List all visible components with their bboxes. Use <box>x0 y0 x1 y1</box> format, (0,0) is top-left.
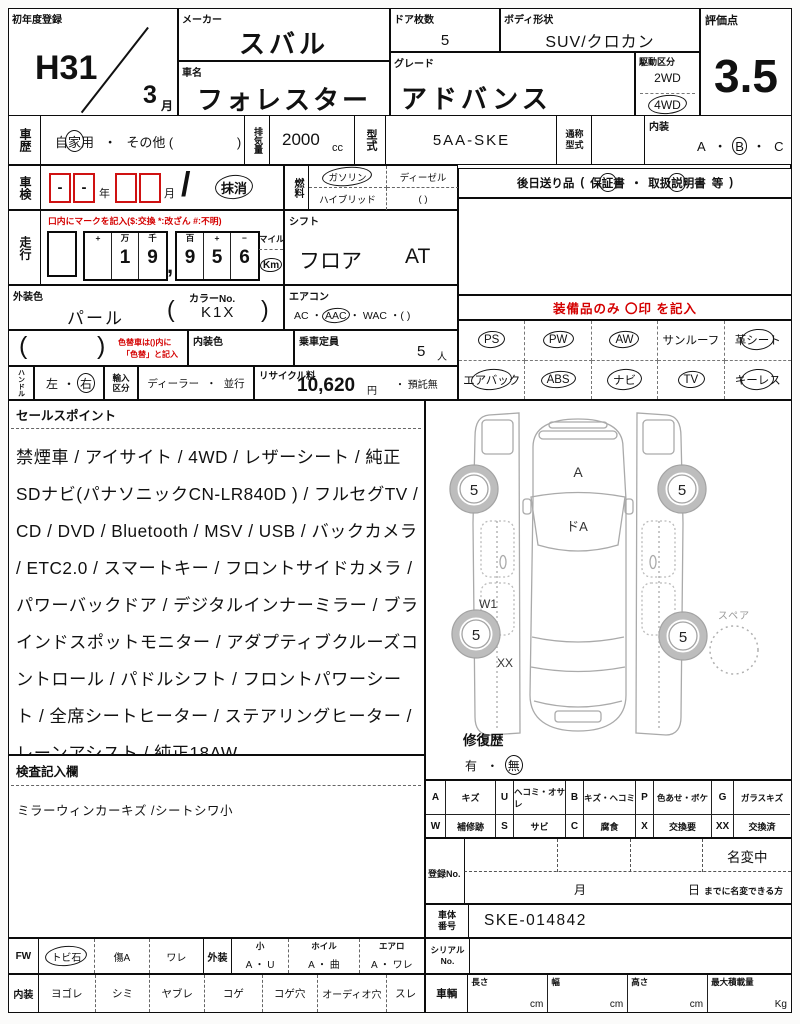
common-code-label-box: 通称型式 <box>556 115 593 165</box>
int-wear: スレ <box>387 975 424 1012</box>
shaken-year-box2: - <box>73 173 95 203</box>
displacement-label-box: 排気量 <box>244 115 271 165</box>
capacity-unit: 人 <box>437 348 447 363</box>
interior-color-label: 内装色 <box>193 333 223 348</box>
model-code-label-box: 型式 <box>354 115 387 165</box>
shift-label: シフト <box>289 213 319 228</box>
aircon-aac: AAC <box>325 310 347 322</box>
recycle-value: 10,620 <box>297 375 355 397</box>
dim-height-unit: cm <box>690 999 703 1010</box>
interior-grade-b: B <box>735 139 744 154</box>
history-private-circled: 家 <box>68 132 81 151</box>
equipment-title-box: 装備品のみ 〇印 を記入 <box>458 295 792 320</box>
later-items-label: 後日送り品 <box>517 175 575 191</box>
color-no-value: K1X <box>201 304 235 321</box>
car-diagram: 5 5 5 5 スペア A ドA W1 XX <box>427 405 791 737</box>
legend-val: サビ <box>514 815 566 837</box>
later-items-open: ( <box>580 177 584 189</box>
displacement-value: 2000 <box>282 130 320 150</box>
fuel-label-box: 燃料 <box>284 165 310 210</box>
car-diagram-box: 5 5 5 5 スペア A ドA W1 XX 修復歴 有 ・ 無 <box>425 400 792 780</box>
car-name-label: 車名 <box>182 64 202 79</box>
shaken-year-box1: - <box>49 173 71 203</box>
int-burn: コゲ <box>205 975 263 1012</box>
legend-val: キズ <box>446 781 496 815</box>
model-code-value: 5AA-SKE <box>433 132 510 149</box>
later-items-etc: 等 <box>712 175 724 191</box>
color-change-box: ( ) 色替車は()内に 「色替」と記入 <box>8 330 188 366</box>
import-box: ディーラー ・ 並行 <box>138 366 254 400</box>
mileage-note: 口内にマークを記入($:交換 *:改ざん #:不明) <box>48 214 222 227</box>
color-no-close: ) <box>261 296 269 323</box>
color-change-note2: 「色替」と記入 <box>122 349 178 360</box>
car-name-box: 車名 フォレスター <box>178 61 390 116</box>
mileage-km-unit: Km <box>263 260 279 271</box>
svg-text:5: 5 <box>470 482 478 499</box>
import-label: 輸入区分 <box>112 373 130 393</box>
import-dot: ・ <box>206 376 217 391</box>
handle-dot: ・ <box>63 375 75 392</box>
interior-damage-label: 内装 <box>9 975 39 1012</box>
equip-aw: AW <box>615 334 633 346</box>
legend-val: キズ・ヘコミ <box>584 781 636 815</box>
shaken-month-box2 <box>139 173 161 203</box>
later-items-dot: ・ <box>631 175 643 191</box>
dim-length-label: 長さ <box>471 976 488 988</box>
fw-row: FW トビ石 傷A ワレ 外装 小 A ・ U ホイル A ・ 曲 エアロ A … <box>8 938 425 974</box>
legend-key: XX <box>712 815 734 837</box>
legend-val: 色あせ・ボケ <box>654 781 712 815</box>
inspection-divider <box>11 785 421 786</box>
history-box: 自家用 ・ その他 ( ) <box>40 115 246 165</box>
dim-width-label: 幅 <box>551 976 560 988</box>
serial-label: シリアルNo. <box>429 945 467 966</box>
capacity-box: 乗車定員 5 人 <box>294 330 458 366</box>
notes-empty-box <box>458 198 792 295</box>
grade-value: アドバンス <box>401 79 552 116</box>
equip-pw: PW <box>549 334 568 346</box>
displacement-label: 排気量 <box>253 116 262 164</box>
model-code-box: 5AA-SKE <box>385 115 558 165</box>
sales-points-label: セールスポイント <box>16 405 116 424</box>
inspection-box: 検査記入欄 ミラーウィンカーキズ /シートシワ小 <box>8 755 425 938</box>
repair-no: 無 <box>508 757 520 774</box>
interior-grade-c: C <box>774 139 783 154</box>
later-items-close: ) <box>729 177 733 189</box>
legend-key: C <box>566 815 584 837</box>
fuel-box: ガソリン ディーゼル ハイブリッド ( ) <box>308 165 458 210</box>
svg-text:5: 5 <box>679 629 687 646</box>
mileage-group1: + 万1 千9 <box>83 231 168 281</box>
mileage-label: 走行 <box>19 211 31 284</box>
interior-color-box: 内装色 <box>188 330 294 366</box>
first-reg-era: H31 <box>35 49 97 88</box>
legend-val: 交換要 <box>654 815 712 837</box>
shift-transmission: AT <box>405 245 430 269</box>
recycle-box: リサイクル料 10,620 円 ・ 預託無 <box>254 366 458 400</box>
drive-2wd: 2WD <box>654 71 681 85</box>
registration-status: 名変中 <box>727 846 768 866</box>
svg-text:5: 5 <box>472 627 480 644</box>
model-code-label: 型式 <box>365 116 376 164</box>
ext-aero-header: エアロ <box>360 940 424 952</box>
displacement-unit: cc <box>332 142 343 154</box>
serial-row: シリアルNo. <box>425 938 792 974</box>
dim-width-unit: cm <box>610 999 623 1010</box>
ext-wheel-options: A ・ 曲 <box>289 956 358 971</box>
shaken-year-unit: 年 <box>99 185 110 201</box>
wheels: 5 5 5 5 <box>450 465 707 660</box>
fuel-label: 燃料 <box>292 166 302 209</box>
color-no-open: ( <box>167 296 175 323</box>
ext-aero-options: A ・ ワレ <box>360 956 424 971</box>
history-dot: ・ <box>104 135 117 150</box>
registration-label: 登録No. <box>428 867 461 880</box>
int-audio-hole: オーディオ穴 <box>318 975 388 1012</box>
equip-navi: ナビ <box>613 372 636 388</box>
color-no-label: カラーNo. <box>189 290 235 305</box>
interior-grade-box: 内装 A ・ B ・ C <box>644 115 792 165</box>
grade-label: グレード <box>394 55 434 70</box>
repair-dot: ・ <box>486 759 498 773</box>
first-reg-month: 3 <box>143 81 157 110</box>
legend-key: W <box>426 815 446 837</box>
legend-key: G <box>712 781 734 815</box>
registration-top-row: 名変中 <box>464 839 791 872</box>
capacity-label: 乗車定員 <box>299 333 339 348</box>
doors-value: 5 <box>441 32 449 49</box>
mileage-empty-box <box>47 231 77 277</box>
common-code-label: 通称型式 <box>565 129 585 151</box>
interior-damage-row: 内装 ヨゴレ シミ ヤブレ コゲ コゲ穴 オーディオ穴 スレ <box>8 974 425 1013</box>
registration-note: までに名変できる方 <box>704 884 783 897</box>
doors-label: ドア枚数 <box>394 11 434 26</box>
registration-month: 月 <box>574 881 586 898</box>
aircon-other: ・( ) <box>390 310 410 322</box>
handle-label-box: ハンドル <box>8 366 34 400</box>
history-close: ) <box>237 135 241 150</box>
equip-sunroof: サンルーフ <box>662 332 719 348</box>
aircon-dot1: ・ <box>312 310 323 322</box>
mileage-mile-unit: マイル <box>259 233 285 245</box>
score-value: 3.5 <box>714 49 778 103</box>
first-registration-box: 初年度登録 H31 3 月 <box>8 8 178 116</box>
legend-key: X <box>636 815 654 837</box>
interior-grade-label: 内装 <box>649 118 669 133</box>
dim-height-label: 高さ <box>631 976 648 988</box>
mileage-label-box: 走行 <box>8 210 42 285</box>
body-shape-label: ボディ形状 <box>504 11 553 26</box>
equip-airbag: エアバック <box>463 372 520 388</box>
chassis-value: SKE-014842 <box>484 912 587 930</box>
import-parallel: 並行 <box>224 376 245 391</box>
fuel-hybrid: ハイブリッド <box>319 192 376 206</box>
sales-points-box: セールスポイント 禁煙車 / アイサイト / 4WD / レザーシート / 純正… <box>8 400 425 755</box>
aircon-box: エアコン AC ・ AAC ・ WAC ・( ) <box>284 285 458 330</box>
int-stain: シミ <box>96 975 151 1012</box>
aircon-ac: AC <box>294 310 309 322</box>
history-label-box: 車歴 <box>8 115 42 165</box>
dim-length-unit: cm <box>530 999 543 1010</box>
exterior-label: 外装 <box>204 939 232 973</box>
later-items-warranty: 保証書 <box>590 175 625 191</box>
grade-box: グレード アドバンス <box>390 52 635 116</box>
fuel-diesel: ディーゼル <box>400 170 447 184</box>
handle-box: 左 ・ 右 <box>34 366 104 400</box>
equip-leather-seat: 革シート <box>735 332 781 348</box>
history-label: 車歴 <box>19 116 31 164</box>
handle-label: ハンドル <box>18 367 25 399</box>
legend-key: P <box>636 781 654 815</box>
score-box: 評価点 3.5 <box>700 8 792 116</box>
interior-grade-dot1: ・ <box>714 139 727 154</box>
legend-key: A <box>426 781 446 815</box>
dim-payload-label: 最大積載量 <box>711 976 754 988</box>
interior-grade-dot2: ・ <box>753 139 766 154</box>
shaken-month-box1 <box>115 173 137 203</box>
aircon-dot2: ・ <box>349 310 360 322</box>
drive-4wd: 4WD <box>654 98 681 112</box>
inspection-label: 検査記入欄 <box>16 761 79 780</box>
equipment-grid: PS PW AW サンルーフ 革シート エアバック ABS ナビ TV キーレス <box>458 320 792 400</box>
equip-keyless: キーレス <box>735 372 781 388</box>
first-reg-month-unit: 月 <box>161 97 173 114</box>
shaken-expired: 抹消 <box>221 178 247 197</box>
drive-box: 駆動区分 2WD 4WD <box>635 52 700 116</box>
windshield-mark: ドA <box>566 519 588 534</box>
legend-val: ヘコミ・オサレ <box>514 781 566 815</box>
doors-box: ドア枚数 5 <box>390 8 500 52</box>
fw-stone-chip: トビ石 <box>51 949 81 964</box>
int-tear: ヤブレ <box>150 975 205 1012</box>
fuel-gasoline: ガソリン <box>328 170 366 184</box>
body-shape-value: SUV/クロカン <box>545 28 654 52</box>
repair-yes: 有 <box>465 759 477 773</box>
equip-abs: ABS <box>547 374 570 386</box>
equipment-title: 装備品のみ 〇印 を記入 <box>459 296 791 319</box>
legend-val: 交換済 <box>734 815 790 837</box>
fuel-other: ( ) <box>419 194 428 205</box>
shift-type: フロア <box>299 245 362 275</box>
exterior-color-value: パール <box>67 304 124 329</box>
registration-day: 日 <box>688 881 700 898</box>
exterior-color-box: 外装色 パール カラーNo. ( K1X ) <box>8 285 284 330</box>
aircon-label: エアコン <box>289 288 329 303</box>
maker-box: メーカー スバル <box>178 8 390 61</box>
color-change-open: ( <box>19 332 27 361</box>
legend-grid: A キズ U ヘコミ・オサレ B キズ・ヘコミ P 色あせ・ボケ G ガラスキズ… <box>425 780 792 838</box>
exterior-color-label: 外装色 <box>13 288 43 303</box>
ext-small-header: 小 <box>232 940 288 952</box>
ext-wheel-header: ホイル <box>289 940 358 952</box>
handle-right: 右 <box>80 375 92 392</box>
shaken-month-unit: 月 <box>164 185 175 201</box>
history-other: その他 ( <box>126 135 173 150</box>
xx-mark: XX <box>497 656 513 670</box>
equip-ps: PS <box>484 334 499 346</box>
mileage-box: 口内にマークを記入($:交換 *:改ざん #:不明) + 万1 千9 , 百9 … <box>40 210 284 285</box>
body-shape-box: ボディ形状 SUV/クロカン <box>500 8 700 52</box>
score-label: 評価点 <box>705 12 738 28</box>
fw-scratch-a: 傷A <box>95 939 149 973</box>
color-change-note1: 色替車は()内に <box>118 337 171 348</box>
maker-label: メーカー <box>182 11 222 26</box>
legend-val: ガラスキズ <box>734 781 790 815</box>
auction-sheet: 初年度登録 H31 3 月 メーカー スバル 車名 フォレスター ドア枚数 5 … <box>0 0 800 1024</box>
first-reg-label: 初年度登録 <box>12 11 62 26</box>
inspection-note: ミラーウィンカーキズ /シートシワ小 <box>17 800 233 819</box>
int-burn-hole: コゲ穴 <box>263 975 318 1012</box>
legend-key: U <box>496 781 514 815</box>
spare-label: スペア <box>718 611 750 622</box>
int-dirt: ヨゴレ <box>39 975 96 1012</box>
spare-tire <box>710 626 758 674</box>
dim-payload-unit: Kg <box>775 999 787 1010</box>
shift-box: シフト フロア AT <box>284 210 458 285</box>
mileage-unit-divider <box>259 249 283 250</box>
displacement-box: 2000 cc <box>269 115 356 165</box>
mileage-comma: , <box>167 253 173 279</box>
fw-crack: ワレ <box>150 939 204 973</box>
registration-box: 登録No. 名変中 月 日 までに名変できる方 <box>425 838 792 904</box>
repair-history-label: 修復歴 <box>463 729 504 749</box>
shaken-label-box: 車検 <box>8 165 42 210</box>
import-dealer: ディーラー <box>147 376 199 391</box>
legend-key: S <box>496 815 514 837</box>
common-code-box <box>591 115 646 165</box>
legend-val: 腐食 <box>584 815 636 837</box>
later-items-manual: 取扱説明書 <box>648 175 706 191</box>
sales-points-text: 禁煙車 / アイサイト / 4WD / レザーシート / 純正SDナビ(パナソニ… <box>16 439 419 772</box>
import-label-box: 輸入区分 <box>104 366 138 400</box>
car-name-value: フォレスター <box>197 80 371 117</box>
recycle-yen: 円 <box>367 382 377 397</box>
chassis-box: 車体番号 SKE-014842 <box>425 904 792 938</box>
svg-text:5: 5 <box>678 482 686 499</box>
sales-points-divider <box>11 428 421 429</box>
maker-value: スバル <box>239 24 329 61</box>
legend-val: 補修跡 <box>446 815 496 837</box>
vehicle-dims-row: 車輌 長さ cm 幅 cm 高さ cm 最大積載量 Kg <box>425 974 792 1013</box>
vehicle-label: 車輌 <box>426 975 468 1012</box>
color-change-close: ) <box>97 332 105 361</box>
recycle-deposit: ・ 預託無 <box>395 376 438 391</box>
interior-grade-a: A <box>697 139 705 154</box>
chassis-label: 車体番号 <box>437 910 457 933</box>
ext-small-options: A ・ U <box>232 956 288 971</box>
mileage-group2: 百9 +5 −6 <box>175 231 260 281</box>
fw-label: FW <box>9 939 39 973</box>
w1-mark: W1 <box>479 597 497 611</box>
capacity-value: 5 <box>417 343 425 360</box>
hood-mark: A <box>573 464 583 480</box>
shaken-label: 車検 <box>19 166 31 209</box>
shaken-box: - - 年 月 / 抹消 <box>40 165 284 210</box>
aircon-wac: WAC <box>363 310 387 322</box>
equip-tv: TV <box>684 374 699 386</box>
shaken-slash: / <box>181 166 190 205</box>
handle-left: 左 <box>46 375 58 392</box>
legend-key: B <box>566 781 584 815</box>
later-items-box: 後日送り品 ( 保証書 ・ 取扱説明書 等 ) <box>458 168 792 198</box>
